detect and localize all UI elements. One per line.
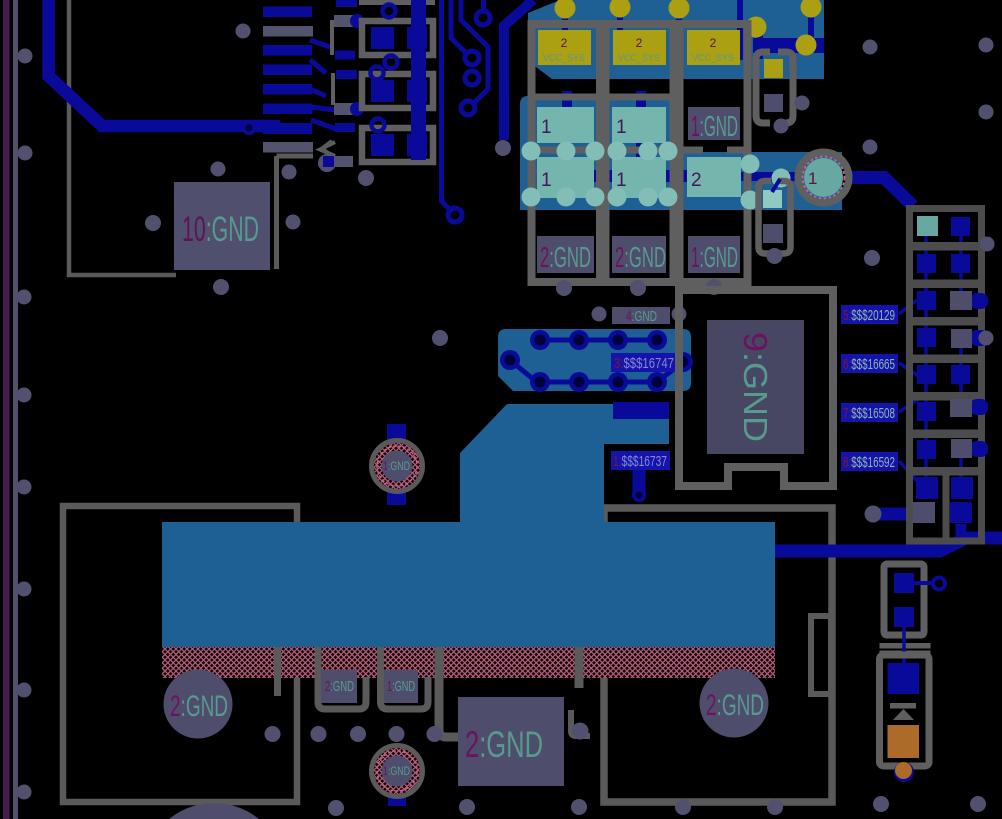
svg-text:2:GND: 2:GND (325, 679, 354, 695)
svg-text:2:GND: 2:GND (465, 724, 543, 765)
svg-text:1: 1 (616, 170, 627, 191)
svg-text:VCC_SYS: VCC_SYS (692, 53, 734, 64)
svg-text:8:$$$16592: 8:$$$16592 (843, 454, 895, 471)
svg-text:1: 1 (541, 117, 552, 138)
svg-text:9:GND: 9:GND (737, 332, 774, 442)
svg-text:1:GND: 1:GND (387, 679, 415, 695)
svg-text:3:$$$16747: 3:$$$16747 (614, 355, 674, 372)
svg-text:1:GND: 1:GND (691, 242, 738, 274)
svg-text:4:GND: 4:GND (626, 308, 657, 325)
svg-text:1:GND: 1:GND (691, 111, 738, 143)
svg-text:1:GND: 1:GND (383, 461, 410, 473)
svg-text:2:GND: 2:GND (170, 690, 228, 723)
svg-text:1: 1 (541, 170, 552, 191)
svg-text:1: 1 (616, 117, 627, 138)
svg-text:2: 2 (710, 36, 717, 50)
svg-text:2: 2 (691, 170, 702, 191)
svg-text:1: 1 (808, 169, 817, 188)
svg-text:VCC_SYS: VCC_SYS (618, 53, 660, 64)
svg-text:10:GND: 10:GND (182, 210, 259, 249)
svg-text:VCC_SYS: VCC_SYS (543, 53, 585, 64)
svg-text:2:GND: 2:GND (540, 242, 591, 274)
svg-text:2:GND: 2:GND (615, 242, 666, 274)
svg-text:2: 2 (561, 36, 568, 50)
svg-text:2: 2 (636, 36, 643, 50)
svg-text:6:$$$16665: 6:$$$16665 (843, 356, 895, 373)
svg-text:2:GND: 2:GND (706, 689, 764, 722)
svg-text:1:$$$16737: 1:$$$16737 (613, 453, 667, 470)
svg-text:7:$$$16508: 7:$$$16508 (843, 405, 895, 422)
svg-text:5:$$$20129: 5:$$$20129 (843, 307, 895, 324)
svg-text:1:GND: 1:GND (383, 766, 410, 778)
